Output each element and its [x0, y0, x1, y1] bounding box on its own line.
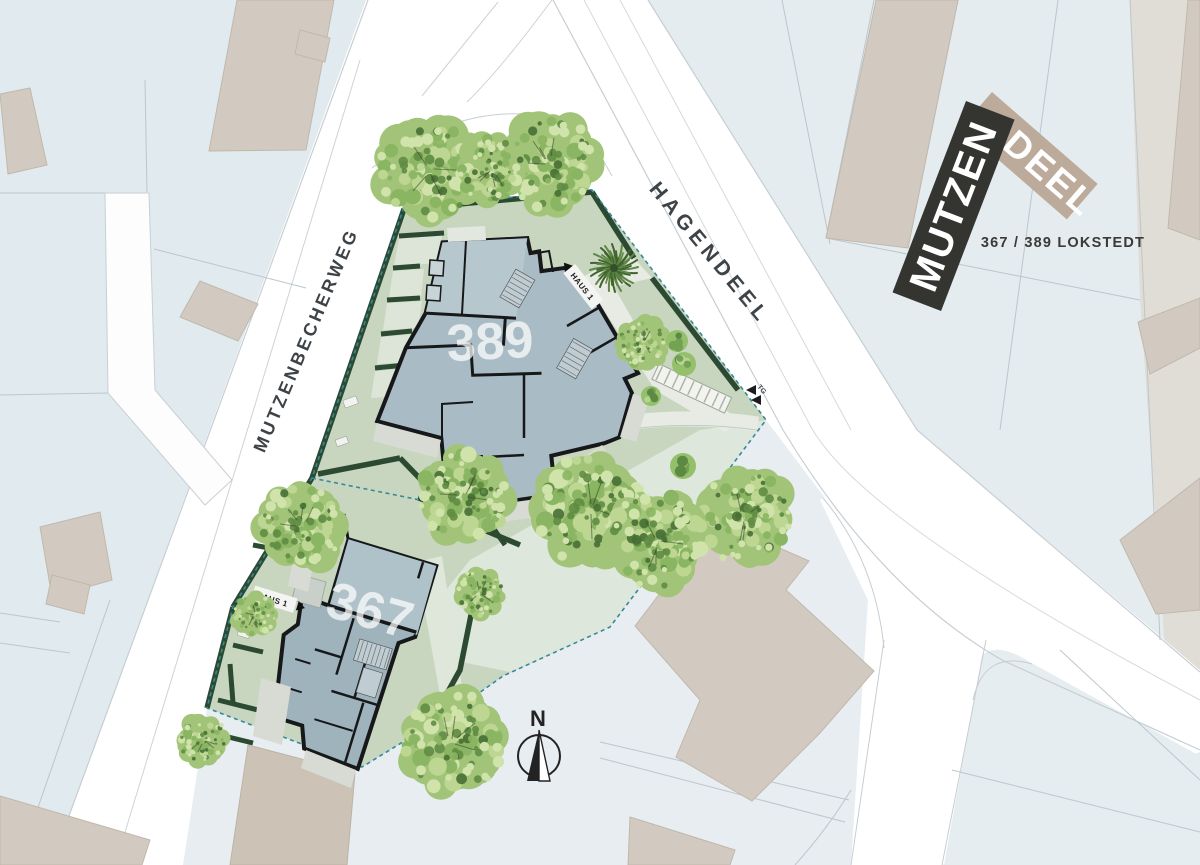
svg-text:389: 389: [445, 311, 535, 373]
svg-text:367 / 389 LOKSTEDT: 367 / 389 LOKSTEDT: [981, 235, 1145, 251]
svg-text:N: N: [530, 706, 546, 731]
